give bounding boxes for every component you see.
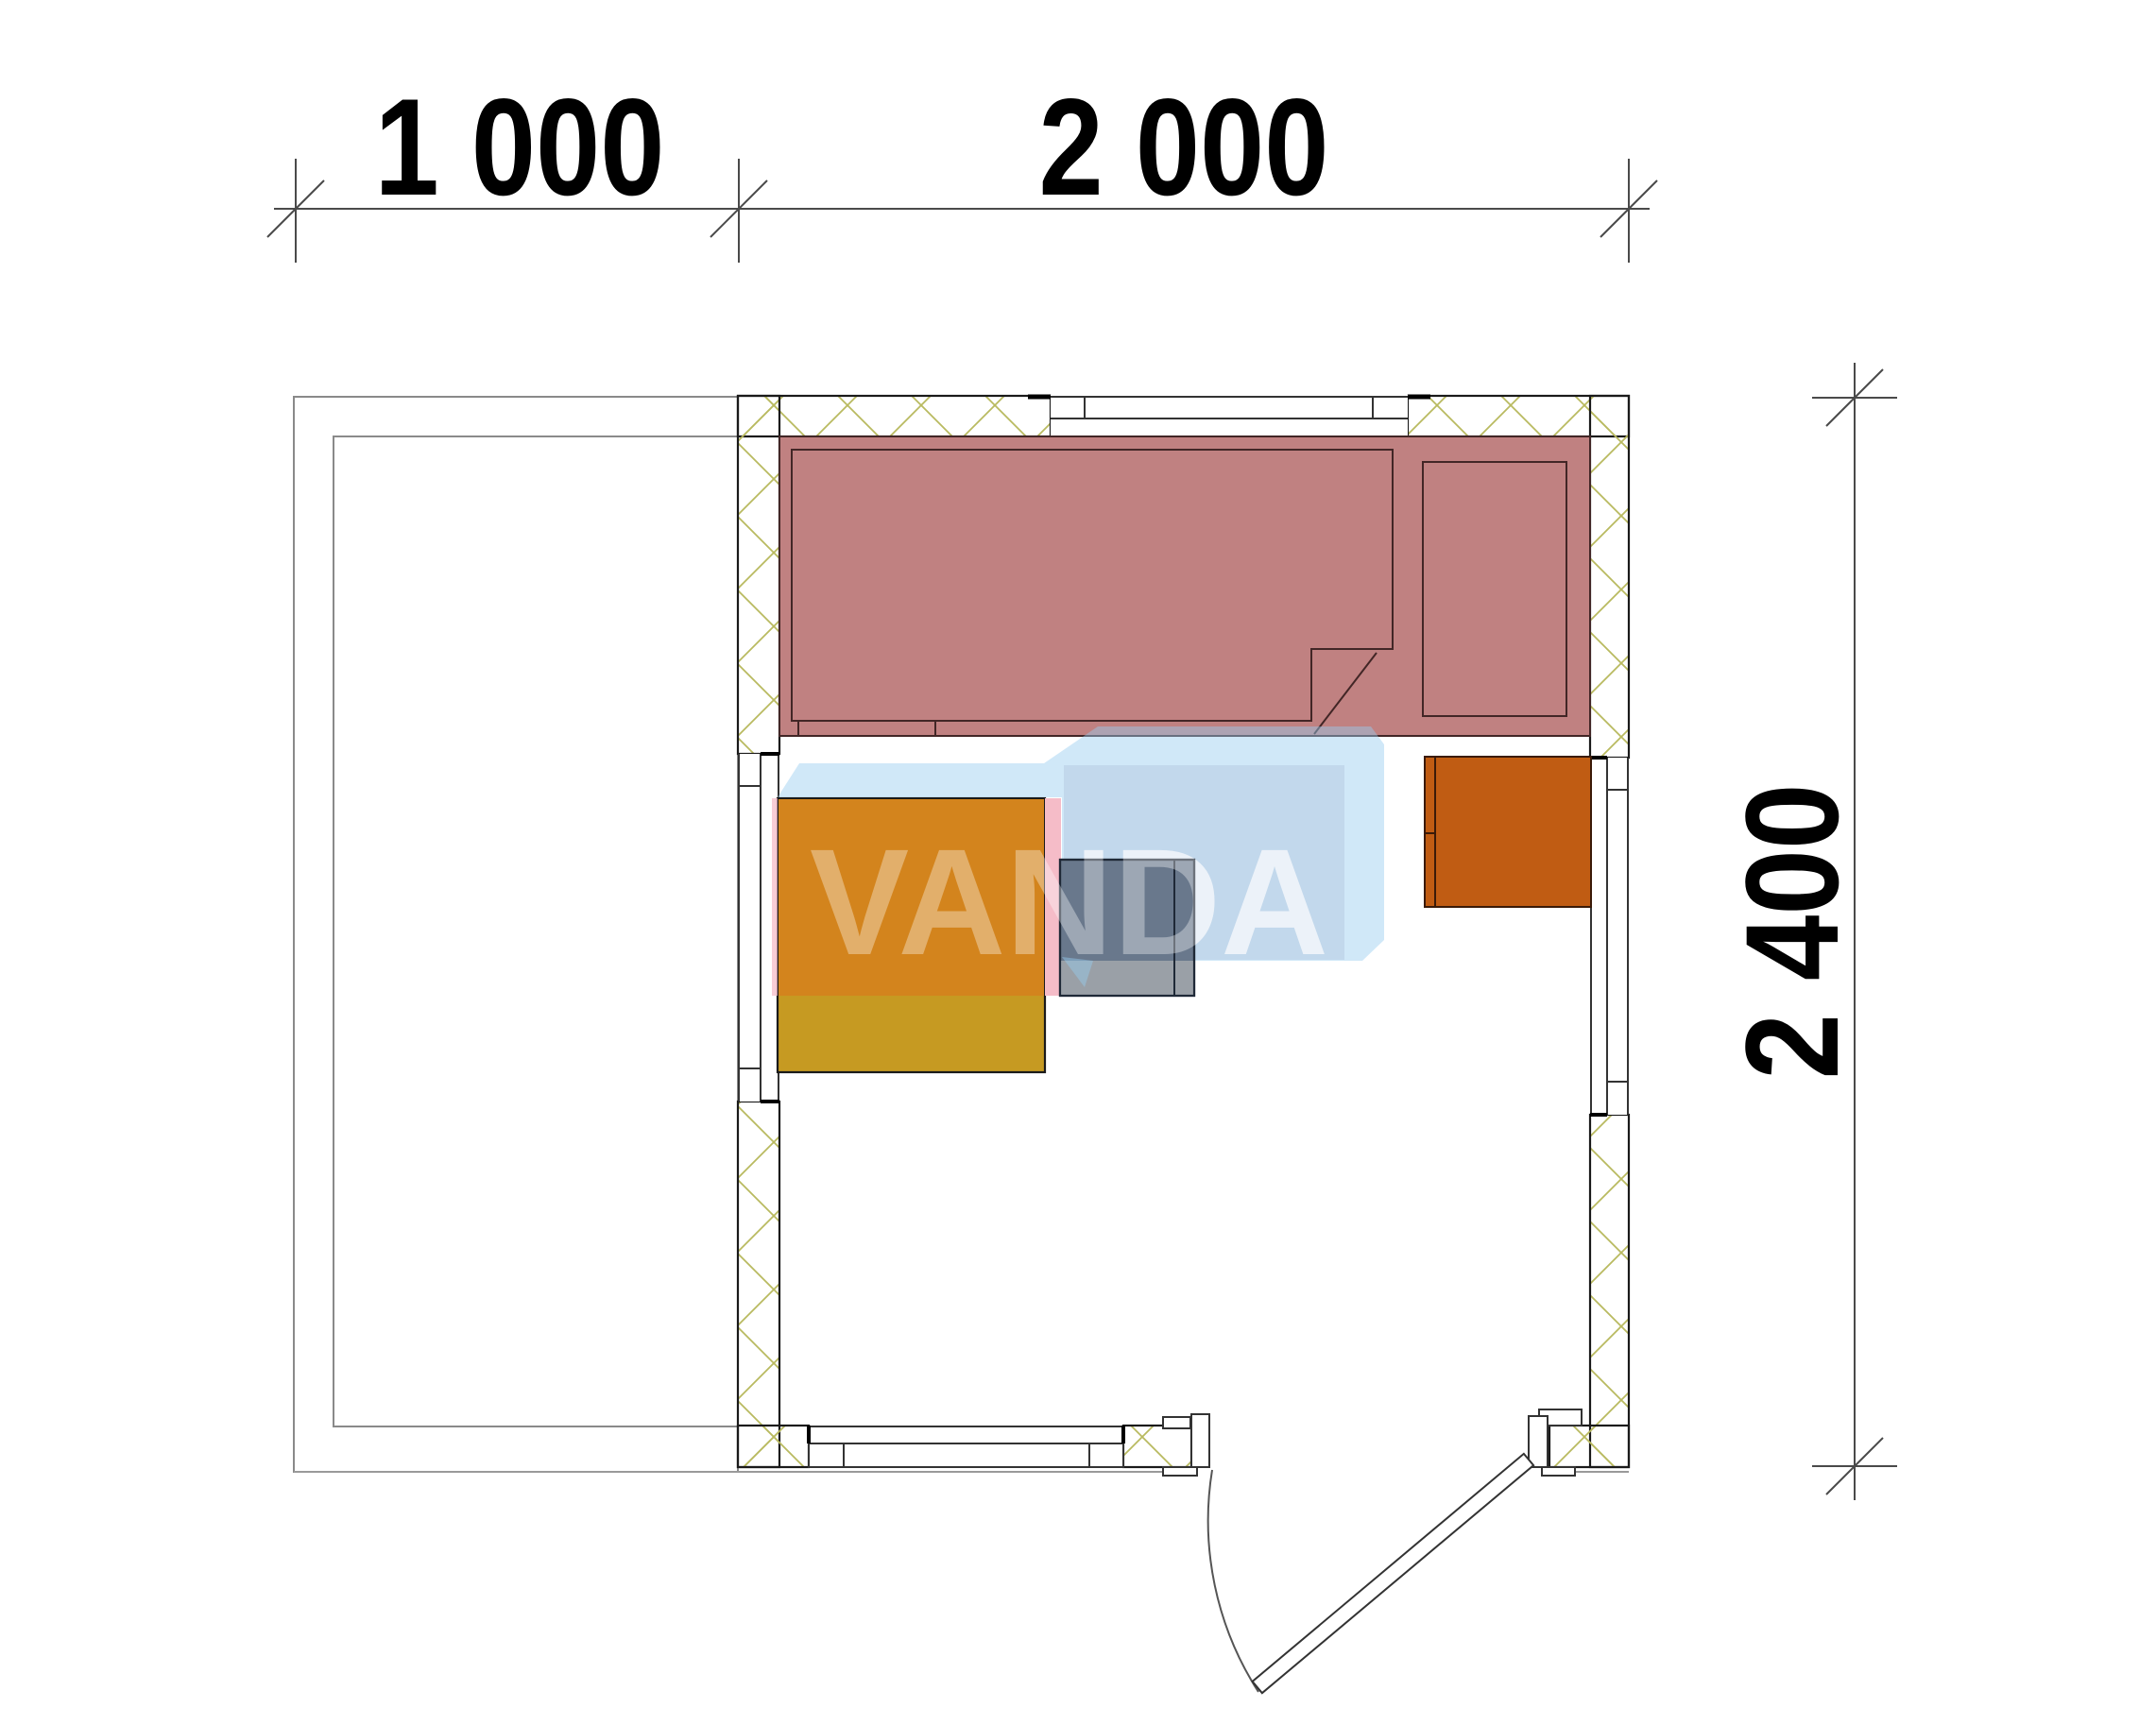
svg-text:1 000: 1 000	[375, 70, 665, 224]
svg-text:VANDA: VANDA	[810, 817, 1328, 986]
svg-text:2 400: 2 400	[1718, 784, 1866, 1080]
svg-text:2 000: 2 000	[1039, 70, 1329, 224]
